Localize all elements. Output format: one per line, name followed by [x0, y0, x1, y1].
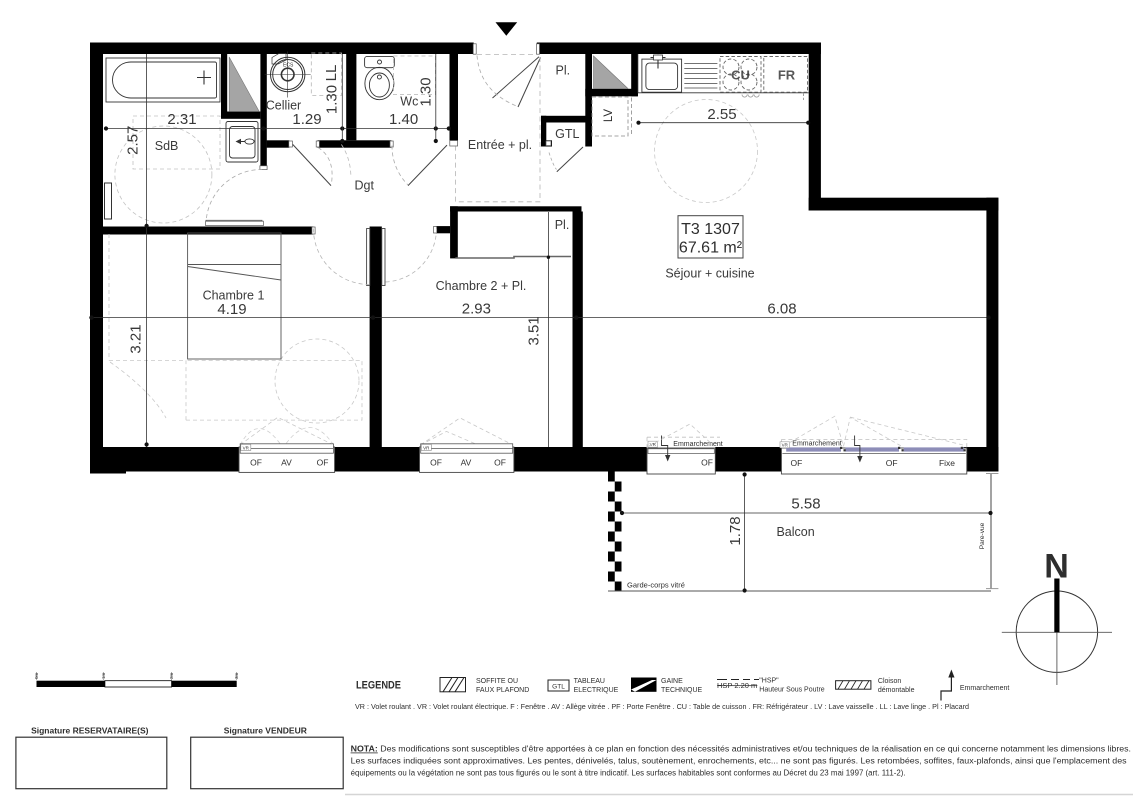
svg-text:1.29: 1.29 [292, 111, 321, 128]
svg-text:"HSP": "HSP" [759, 678, 779, 685]
svg-text:2.55: 2.55 [707, 106, 736, 123]
svg-text:Les surfaces indiquées sont ap: Les surfaces indiquées sont approximativ… [351, 757, 1127, 766]
svg-text:67.61 m²: 67.61 m² [679, 240, 743, 257]
svg-text:Cellier: Cellier [266, 99, 301, 113]
svg-text:N: N [1044, 548, 1069, 586]
svg-text:T3 1307: T3 1307 [681, 221, 740, 238]
svg-text:5.58: 5.58 [791, 496, 820, 513]
svg-text:Garde-corps vitré: Garde-corps vitré [627, 581, 685, 590]
svg-text:3.51: 3.51 [526, 316, 543, 345]
svg-text:GTL: GTL [552, 684, 565, 691]
svg-text:Pare-vue: Pare-vue [979, 522, 986, 549]
svg-text:Balcon: Balcon [776, 525, 814, 539]
svg-text:1.78: 1.78 [727, 516, 744, 545]
svg-text:Chambre 2 + Pl.: Chambre 2 + Pl. [436, 279, 527, 293]
svg-text:TECHNIQUE: TECHNIQUE [661, 687, 703, 694]
svg-text:OF: OF [701, 458, 713, 468]
svg-text:Pl.: Pl. [555, 218, 570, 232]
svg-text:0m: 0m [34, 672, 39, 679]
svg-text:FAUX PLAFOND: FAUX PLAFOND [476, 687, 529, 694]
svg-text:Signature RESERVATAIRE(S): Signature RESERVATAIRE(S) [31, 726, 149, 736]
svg-text:GAINE: GAINE [661, 678, 683, 685]
svg-text:2.57: 2.57 [125, 126, 142, 155]
svg-text:VR: VR [243, 445, 250, 450]
svg-text:CU: CU [731, 68, 750, 83]
svg-text:Séjour + cuisine: Séjour + cuisine [665, 267, 754, 281]
svg-text:Pl.: Pl. [556, 64, 571, 78]
svg-text:1.40: 1.40 [389, 111, 418, 128]
svg-text:4.19: 4.19 [217, 301, 246, 318]
svg-text:AV: AV [281, 458, 292, 468]
svg-text:VR : Volet roulant . VR : Vole: VR : Volet roulant . VR : Volet roulant … [355, 702, 969, 711]
svg-text:GTL: GTL [555, 127, 579, 141]
svg-text:OF: OF [790, 458, 802, 468]
svg-text:2m: 2m [169, 672, 174, 679]
svg-text:6.08: 6.08 [767, 301, 796, 318]
svg-text:Fixe: Fixe [939, 458, 955, 468]
svg-text:démontable: démontable [878, 687, 915, 694]
svg-text:Emmarchement: Emmarchement [673, 441, 722, 448]
svg-text:SdB: SdB [155, 139, 179, 153]
svg-text:Signature VENDEUR: Signature VENDEUR [224, 726, 307, 736]
svg-text:Entrée + pl.: Entrée + pl. [468, 138, 532, 152]
svg-text:OF: OF [250, 458, 262, 468]
svg-text:3m: 3m [234, 672, 239, 679]
svg-text:3.21: 3.21 [128, 324, 145, 353]
svg-text:Hauteur Sous Poutre: Hauteur Sous Poutre [759, 687, 824, 694]
svg-text:Emmarchement: Emmarchement [792, 441, 841, 448]
svg-text:OF: OF [494, 458, 506, 468]
svg-text:LV: LV [603, 109, 615, 123]
svg-text:OF: OF [886, 458, 898, 468]
svg-text:OF: OF [317, 458, 329, 468]
svg-text:ELECTRIQUE: ELECTRIQUE [574, 687, 619, 694]
svg-text:LL: LL [323, 65, 340, 82]
svg-text:NOTA: Des modifications sont s: NOTA: Des modifications sont susceptible… [351, 745, 1131, 754]
svg-text:Emmarchement: Emmarchement [960, 685, 1009, 692]
svg-text:OF: OF [430, 458, 442, 468]
svg-text:HSP 2.20 m: HSP 2.20 m [717, 681, 757, 690]
svg-text:AV: AV [461, 458, 472, 468]
svg-text:1m: 1m [101, 672, 106, 679]
svg-text:1.30: 1.30 [324, 85, 341, 114]
svg-text:Cloison: Cloison [878, 678, 901, 685]
svg-text:ECS: ECS [283, 63, 294, 69]
svg-text:1.30: 1.30 [418, 77, 435, 106]
svg-text:TABLEAU: TABLEAU [574, 678, 605, 685]
svg-text:VR: VR [423, 445, 430, 450]
svg-text:Dgt: Dgt [354, 179, 374, 193]
svg-text:SOFFITE OU: SOFFITE OU [476, 678, 518, 685]
svg-text:2.93: 2.93 [462, 301, 491, 318]
svg-text:Chambre 1: Chambre 1 [203, 289, 265, 303]
svg-text:équipements ou la végétation n: équipements ou la végétation ne sont pas… [351, 769, 906, 778]
svg-text:FR: FR [778, 68, 796, 83]
svg-text:LEGENDE: LEGENDE [356, 680, 401, 692]
svg-text:2.31: 2.31 [167, 111, 196, 128]
svg-text:Wc: Wc [400, 95, 418, 109]
